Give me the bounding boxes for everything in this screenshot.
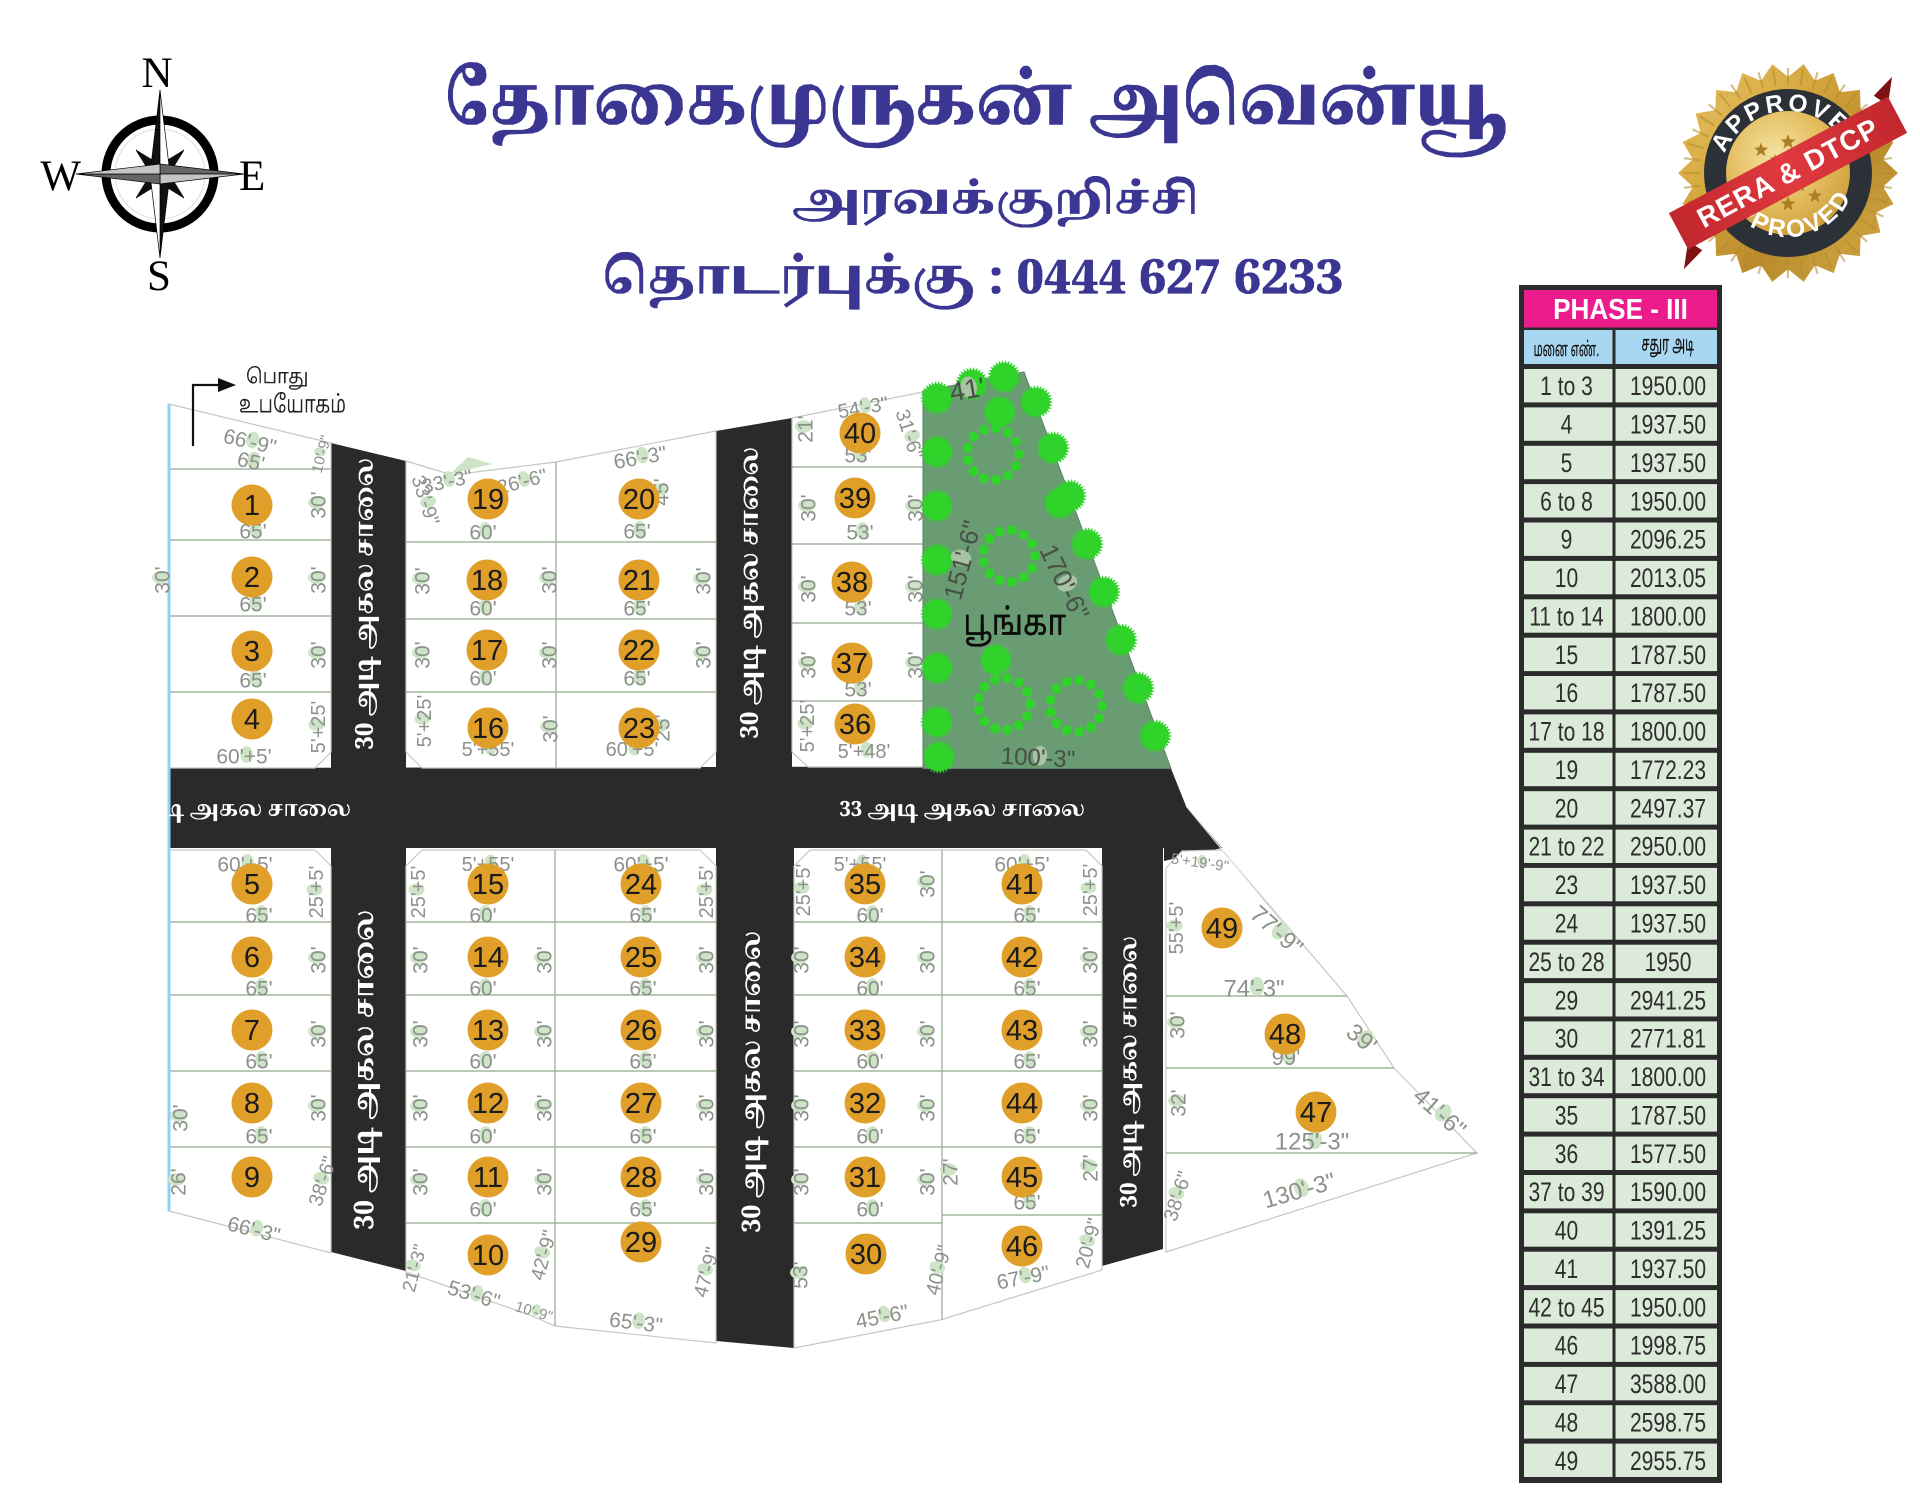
svg-text:30': 30': [308, 491, 331, 518]
svg-text:1937.50: 1937.50: [1630, 410, 1706, 440]
svg-text:1590.00: 1590.00: [1630, 1178, 1706, 1208]
svg-text:5'+25': 5'+25': [308, 701, 330, 754]
svg-text:5'+48': 5'+48': [838, 741, 891, 763]
svg-text:30': 30': [534, 1020, 557, 1047]
svg-text:19: 19: [1555, 756, 1578, 786]
svg-text:20: 20: [623, 484, 655, 516]
svg-text:30': 30': [410, 1020, 433, 1047]
svg-text:1800.00: 1800.00: [1630, 602, 1706, 632]
svg-text:60': 60': [856, 1199, 883, 1222]
svg-text:30': 30': [534, 1094, 557, 1121]
svg-text:22: 22: [623, 635, 655, 667]
svg-text:5: 5: [1561, 448, 1573, 478]
svg-text:1937.50: 1937.50: [1630, 909, 1706, 939]
svg-text:1577.50: 1577.50: [1630, 1139, 1706, 1169]
svg-text:36: 36: [1555, 1139, 1578, 1169]
svg-text:30': 30': [696, 1094, 719, 1121]
svg-text:41: 41: [1006, 869, 1038, 901]
svg-text:46: 46: [1006, 1231, 1038, 1263]
svg-text:60': 60': [469, 598, 496, 621]
svg-text:30': 30': [693, 641, 716, 668]
svg-text:65': 65': [629, 1199, 656, 1222]
svg-text:1950.00: 1950.00: [1630, 487, 1706, 517]
svg-text:60': 60': [469, 668, 496, 691]
svg-text:37 to 39: 37 to 39: [1528, 1178, 1604, 1208]
svg-text:31: 31: [849, 1162, 881, 1194]
svg-text:60': 60': [856, 905, 883, 928]
svg-text:34: 34: [849, 942, 881, 974]
svg-text:30': 30': [693, 567, 716, 594]
svg-text:2598.75: 2598.75: [1630, 1408, 1706, 1438]
svg-text:49: 49: [1206, 913, 1238, 945]
svg-text:40: 40: [1555, 1216, 1578, 1246]
svg-text:4: 4: [1561, 410, 1573, 440]
svg-text:42 to 45: 42 to 45: [1528, 1293, 1604, 1323]
svg-text:1950.00: 1950.00: [1630, 372, 1706, 402]
svg-text:30': 30': [798, 575, 821, 602]
svg-text:E: E: [239, 153, 265, 200]
svg-text:30': 30': [152, 566, 175, 593]
svg-text:30': 30': [905, 651, 928, 678]
svg-text:30': 30': [905, 494, 928, 521]
svg-text:65': 65': [623, 598, 650, 621]
svg-text:17 to 18: 17 to 18: [1528, 717, 1604, 747]
svg-text:30': 30': [791, 1020, 814, 1047]
svg-text:30': 30': [308, 566, 331, 593]
svg-text:30': 30': [539, 566, 562, 593]
svg-text:37: 37: [836, 648, 868, 680]
svg-text:100'-3": 100'-3": [1000, 743, 1076, 774]
svg-text:2: 2: [244, 562, 260, 594]
svg-text:30': 30': [696, 1020, 719, 1047]
svg-text:10: 10: [472, 1240, 504, 1272]
svg-text:30': 30': [534, 1168, 557, 1195]
svg-text:65': 65': [245, 1126, 272, 1149]
svg-text:30': 30': [1080, 1094, 1103, 1121]
svg-text:18: 18: [471, 565, 503, 597]
svg-text:24: 24: [625, 869, 657, 901]
svg-text:30': 30': [791, 1168, 814, 1195]
svg-text:29: 29: [1555, 986, 1578, 1016]
svg-text:65': 65': [245, 1051, 272, 1074]
svg-text:16: 16: [472, 713, 504, 745]
svg-text:60': 60': [469, 978, 496, 1001]
svg-text:1800.00: 1800.00: [1630, 1063, 1706, 1093]
svg-text:1800.00: 1800.00: [1630, 717, 1706, 747]
svg-text:5'+25': 5'+25': [797, 700, 819, 753]
svg-text:20: 20: [1555, 794, 1578, 824]
svg-text:65': 65': [629, 1051, 656, 1074]
svg-text:14: 14: [472, 942, 504, 974]
svg-text:11 to 14: 11 to 14: [1529, 602, 1604, 632]
svg-text:30': 30': [534, 946, 557, 973]
svg-text:6: 6: [244, 942, 260, 974]
svg-text:65': 65': [629, 905, 656, 928]
svg-text:30': 30': [410, 946, 433, 973]
svg-text:30': 30': [917, 870, 940, 897]
svg-text:27': 27': [940, 1158, 963, 1185]
svg-text:65': 65': [1013, 1051, 1040, 1074]
svg-text:24: 24: [1555, 909, 1578, 939]
svg-text:60': 60': [469, 1126, 496, 1149]
svg-text:1787.50: 1787.50: [1630, 640, 1706, 670]
svg-text:60': 60': [469, 905, 496, 928]
svg-text:16: 16: [1555, 679, 1578, 709]
svg-text:23: 23: [623, 713, 655, 745]
svg-text:30: 30: [850, 1239, 882, 1271]
svg-text:W: W: [40, 153, 81, 200]
svg-text:6 to 8: 6 to 8: [1540, 487, 1593, 517]
svg-text:12: 12: [472, 1088, 504, 1120]
svg-text:10: 10: [1555, 564, 1578, 594]
svg-text:N: N: [141, 50, 172, 97]
svg-text:125'-3": 125'-3": [1275, 1129, 1349, 1156]
svg-text:2771.81: 2771.81: [1630, 1024, 1706, 1054]
svg-text:30': 30': [410, 1094, 433, 1121]
svg-text:65': 65': [245, 978, 272, 1001]
svg-text:35: 35: [849, 869, 881, 901]
svg-text:30': 30': [917, 1020, 940, 1047]
svg-text:65': 65': [239, 670, 266, 693]
svg-text:30': 30': [308, 946, 331, 973]
svg-text:5'+25': 5'+25': [414, 695, 436, 748]
svg-text:60': 60': [856, 1126, 883, 1149]
svg-text:1772.23: 1772.23: [1630, 756, 1706, 786]
svg-text:30': 30': [308, 1094, 331, 1121]
svg-text:32: 32: [849, 1088, 881, 1120]
svg-text:25 to 28: 25 to 28: [1528, 947, 1604, 977]
svg-text:25: 25: [625, 942, 657, 974]
svg-text:1998.75: 1998.75: [1630, 1331, 1706, 1361]
svg-text:49: 49: [1555, 1446, 1578, 1476]
svg-text:65': 65': [1013, 1126, 1040, 1149]
svg-text:30': 30': [696, 1168, 719, 1195]
svg-text:3: 3: [244, 636, 260, 668]
svg-text:42: 42: [1006, 942, 1038, 974]
svg-text:32': 32': [1168, 1089, 1191, 1116]
svg-text:65': 65': [623, 668, 650, 691]
svg-text:25'+5': 25'+5': [696, 866, 718, 919]
svg-text:27: 27: [625, 1088, 657, 1120]
svg-text:30': 30': [308, 641, 331, 668]
svg-text:1787.50: 1787.50: [1630, 1101, 1706, 1131]
svg-text:44: 44: [1006, 1088, 1038, 1120]
svg-text:30': 30': [791, 1094, 814, 1121]
svg-text:2497.37: 2497.37: [1630, 794, 1706, 824]
svg-text:S: S: [147, 253, 171, 300]
svg-text:60': 60': [856, 1051, 883, 1074]
svg-text:39: 39: [839, 483, 871, 515]
svg-text:3588.00: 3588.00: [1630, 1370, 1706, 1400]
svg-text:33: 33: [849, 1015, 881, 1047]
svg-text:1937.50: 1937.50: [1630, 1254, 1706, 1284]
svg-text:65': 65': [1013, 905, 1040, 928]
svg-text:2941.25: 2941.25: [1630, 986, 1706, 1016]
svg-text:60': 60': [469, 1051, 496, 1074]
svg-text:46: 46: [1555, 1331, 1578, 1361]
svg-text:30': 30': [917, 1168, 940, 1195]
svg-text:30: 30: [1555, 1024, 1578, 1054]
svg-text:21 to 22: 21 to 22: [1528, 832, 1604, 862]
svg-text:7: 7: [244, 1015, 260, 1047]
svg-text:30': 30': [412, 567, 435, 594]
svg-text:2955.75: 2955.75: [1630, 1446, 1706, 1476]
svg-text:60': 60': [469, 522, 496, 545]
svg-text:17: 17: [471, 635, 503, 667]
svg-text:30': 30': [917, 946, 940, 973]
svg-text:30': 30': [791, 946, 814, 973]
svg-text:21: 21: [623, 565, 655, 597]
svg-text:13: 13: [472, 1015, 504, 1047]
svg-text:30': 30': [798, 494, 821, 521]
svg-text:2013.05: 2013.05: [1630, 564, 1706, 594]
svg-text:60': 60': [856, 978, 883, 1001]
svg-text:28: 28: [625, 1162, 657, 1194]
svg-text:47: 47: [1300, 1097, 1332, 1129]
svg-text:2950.00: 2950.00: [1630, 832, 1706, 862]
svg-text:30': 30': [905, 575, 928, 602]
svg-text:43: 43: [1006, 1015, 1038, 1047]
svg-text:23: 23: [1555, 871, 1578, 901]
svg-text:2096.25: 2096.25: [1630, 525, 1706, 555]
svg-text:15: 15: [1555, 640, 1578, 670]
svg-text:19: 19: [472, 484, 504, 516]
svg-text:47: 47: [1555, 1370, 1578, 1400]
svg-text:74'-3": 74'-3": [1223, 976, 1284, 1003]
svg-text:1787.50: 1787.50: [1630, 679, 1706, 709]
svg-text:38: 38: [836, 567, 868, 599]
svg-text:60'+5': 60'+5': [216, 746, 271, 769]
svg-text:53': 53': [790, 1261, 813, 1288]
svg-text:30': 30': [410, 1168, 433, 1195]
svg-text:25'+5': 25'+5': [408, 866, 430, 919]
svg-text:41: 41: [1555, 1254, 1578, 1284]
svg-text:1937.50: 1937.50: [1630, 448, 1706, 478]
svg-text:1391.25: 1391.25: [1630, 1216, 1706, 1246]
svg-text:26': 26': [168, 1168, 191, 1195]
svg-text:45: 45: [1006, 1162, 1038, 1194]
svg-text:8: 8: [244, 1088, 260, 1120]
svg-text:30': 30': [308, 1020, 331, 1047]
svg-text:25'+5': 25'+5': [1080, 864, 1102, 917]
svg-text:25'+5': 25'+5': [306, 866, 328, 919]
svg-text:31 to 34: 31 to 34: [1528, 1063, 1604, 1093]
svg-text:30': 30': [540, 715, 563, 742]
svg-text:1950.00: 1950.00: [1630, 1293, 1706, 1323]
svg-text:65': 65': [629, 1126, 656, 1149]
svg-text:25'+5': 25'+5': [793, 864, 815, 917]
svg-text:55'+5': 55'+5': [1166, 902, 1188, 955]
svg-text:9: 9: [1561, 525, 1573, 555]
svg-text:1 to 3: 1 to 3: [1540, 372, 1593, 402]
svg-text:30': 30': [1080, 1020, 1103, 1047]
svg-text:30': 30': [170, 1104, 193, 1131]
svg-text:21': 21': [795, 415, 818, 442]
svg-text:65': 65': [1013, 978, 1040, 1001]
svg-text:1: 1: [244, 490, 260, 522]
svg-text:65': 65': [629, 978, 656, 1001]
svg-text:26: 26: [625, 1015, 657, 1047]
svg-text:30': 30': [917, 1094, 940, 1121]
svg-text:30': 30': [798, 651, 821, 678]
svg-text:27': 27': [1080, 1154, 1103, 1181]
svg-text:65': 65': [245, 905, 272, 928]
svg-text:53': 53': [846, 522, 873, 545]
svg-text:36: 36: [839, 709, 871, 741]
svg-text:30': 30': [1167, 1011, 1190, 1038]
svg-text:35: 35: [1555, 1101, 1578, 1131]
svg-text:29: 29: [625, 1227, 657, 1259]
svg-text:48: 48: [1555, 1408, 1578, 1438]
svg-text:30': 30': [539, 641, 562, 668]
svg-text:11: 11: [473, 1162, 503, 1194]
svg-text:65': 65': [623, 521, 650, 544]
svg-text:4: 4: [244, 704, 260, 736]
svg-text:30': 30': [1080, 946, 1103, 973]
svg-text:1937.50: 1937.50: [1630, 871, 1706, 901]
svg-text:30': 30': [412, 641, 435, 668]
svg-text:15: 15: [472, 869, 504, 901]
svg-text:PHASE - III: PHASE - III: [1553, 293, 1688, 326]
svg-text:41': 41': [947, 372, 987, 408]
svg-text:48: 48: [1269, 1019, 1301, 1051]
svg-text:40: 40: [844, 418, 876, 450]
svg-text:5: 5: [244, 869, 260, 901]
svg-text:30': 30': [696, 946, 719, 973]
svg-text:9: 9: [244, 1162, 260, 1194]
svg-text:60': 60': [469, 1199, 496, 1222]
svg-text:1950: 1950: [1645, 947, 1692, 977]
